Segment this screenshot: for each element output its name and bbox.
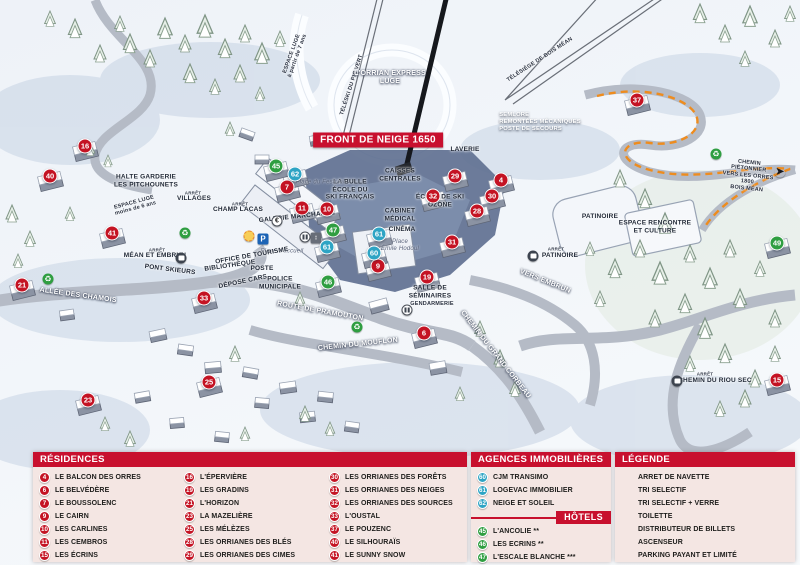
residence-row: 33 L'OUSTAL — [329, 510, 461, 523]
map-marker: 61 — [320, 240, 335, 255]
map-label: GENDARMERIE — [410, 301, 453, 307]
residences-header: RÉSIDENCES — [33, 452, 467, 467]
map-marker: 61 — [372, 227, 387, 242]
map-marker: 25 — [202, 375, 217, 390]
recycle-icon — [43, 274, 54, 285]
residence-row: 23 LA MAZELIÈRE — [184, 510, 329, 523]
residence-number-badge: 15 — [39, 550, 50, 561]
residence-name: LES GRADINS — [200, 487, 249, 494]
legend-icon — [621, 472, 632, 483]
residence-number-badge: 7 — [39, 498, 50, 509]
map-label: ARRÊT — [185, 190, 202, 195]
agence-name: CJM TRANSIMO — [493, 474, 548, 481]
residence-name: L'HORIZON — [200, 500, 239, 507]
map-label: ALLÉE DES CHAMOIS — [39, 287, 117, 306]
map-label: SALLE DE SÉMINAIRES — [409, 284, 451, 299]
legend-row: DISTRIBUTEUR DE BILLETS — [621, 523, 789, 536]
map-label: DÉPOSE CARS — [218, 273, 268, 291]
residence-number-badge: 9 — [39, 511, 50, 522]
residence-row: 32 LES ORRIANES DES SOURCES — [329, 497, 461, 510]
residence-name: LES ORRIANES DES FORÊTS — [345, 474, 446, 481]
residence-number-badge: 41 — [329, 550, 340, 561]
euro-icon — [272, 216, 283, 227]
map-marker: 29 — [448, 169, 463, 184]
residence-number-badge: 31 — [329, 485, 340, 496]
agence-row: 61 LOGEVAC IMMOBILIER — [477, 484, 605, 497]
map-label: VILLAGES — [177, 195, 211, 203]
hotels-divider — [471, 517, 556, 519]
residence-number-badge: 40 — [329, 537, 340, 548]
residence-row: 28 LES ORRIANES DES BLÉS — [184, 536, 329, 549]
map-label: CHAMP LACAS — [213, 206, 263, 214]
front-de-neige-banner: FRONT DE NEIGE 1650 — [313, 133, 443, 148]
residence-name: LE CAIRN — [55, 513, 89, 520]
residences-title: RÉSIDENCES — [40, 454, 105, 465]
map-marker: 37 — [630, 93, 645, 108]
map-label: ESPACE RENCONTRE ET CULTURE — [619, 219, 691, 234]
residence-name: LES ORRIANES DES SOURCES — [345, 500, 453, 507]
residence-row: 37 LE POUZENC — [329, 523, 461, 536]
legend-list: ARRET DE NAVETTE TRI SELECTIF TRI SELECT… — [615, 467, 795, 564]
residence-name: LE BALCON DES ORRES — [55, 474, 141, 481]
map-label: TÉLÉSIÈGE DE BOIS MÉAN — [506, 36, 574, 83]
map-label: Place Émile Hodoul — [381, 239, 419, 253]
agences-hotels-panel: AGENCES IMMOBILIÈRES 60 CJM TRANSIMO 61 … — [471, 452, 611, 562]
agence-number-badge: 61 — [477, 485, 488, 496]
hotel-number-badge: 46 — [477, 539, 488, 550]
map-marker: 10 — [320, 202, 335, 217]
map-label: ARRÊT — [548, 246, 565, 251]
residence-number-badge: 6 — [39, 485, 50, 496]
legend-icon — [621, 511, 632, 522]
map-marker: 47 — [326, 223, 341, 238]
map-label: CHEMIN PIÉTONNIER VERS LES ORRES 1800 BO… — [720, 157, 775, 195]
wc-icon — [300, 232, 311, 243]
residence-name: LE POUZENC — [345, 526, 391, 533]
residence-number-badge: 30 — [329, 472, 340, 483]
agence-number-badge: 62 — [477, 498, 488, 509]
resort-map: FRONT DE NEIGE 1650 ESPACE LUGE à partir… — [0, 0, 800, 565]
recycle-icon — [352, 322, 363, 333]
legend-label: ARRET DE NAVETTE — [638, 474, 709, 481]
residence-row: 29 LES ORRIANES DES CIMES — [184, 549, 329, 562]
residence-row: 7 LE BOUSSOLENC — [39, 497, 184, 510]
wc-icon — [402, 305, 413, 316]
map-marker: 15 — [770, 373, 785, 388]
agences-title: AGENCES IMMOBILIÈRES — [478, 454, 603, 465]
hotel-name: LES ECRINS ** — [493, 541, 544, 548]
legend-icon — [621, 524, 632, 535]
legend-icon — [621, 498, 632, 509]
residence-number-badge: 23 — [184, 511, 195, 522]
map-label: Place du Festival — [295, 179, 344, 186]
agence-name: NEIGE ET SOLEIL — [493, 500, 554, 507]
legend-title: LÉGENDE — [622, 454, 670, 465]
map-marker: 32 — [426, 189, 441, 204]
legend-icon — [621, 485, 632, 496]
hotel-name: L'ESCALE BLANCHE *** — [493, 554, 576, 561]
residence-number-badge: 10 — [39, 524, 50, 535]
residence-number-badge: 21 — [184, 498, 195, 509]
hotel-row: 45 L'ANCOLIE ** — [477, 525, 605, 538]
map-marker: 40 — [43, 169, 58, 184]
residence-name: LES ORRIANES DES NEIGES — [345, 487, 445, 494]
bus-icon — [176, 253, 187, 264]
residence-number-badge: 37 — [329, 524, 340, 535]
map-label: ESPACE LUGE moins de 6 ans — [113, 194, 157, 218]
residence-row: 16 L'ÉPERVIÈRE — [184, 471, 329, 484]
agence-number-badge: 60 — [477, 472, 488, 483]
map-marker: 60 — [367, 246, 382, 261]
map-marker: 45 — [269, 159, 284, 174]
map-label: LA BULLE ÉCOLE DU SKI FRANÇAIS — [326, 179, 375, 202]
map-marker: 46 — [321, 275, 336, 290]
residence-name: L'OUSTAL — [345, 513, 380, 520]
map-label: L'ORRIAN EXPRESS LUGE — [354, 70, 426, 87]
residence-number-badge: 32 — [329, 498, 340, 509]
glass-icon — [244, 231, 255, 242]
residence-name: LES ÉCRINS — [55, 552, 98, 559]
map-marker: 21 — [15, 278, 30, 293]
residence-row: 11 LES CEMBROS — [39, 536, 184, 549]
map-label: CHEMIN DU MOUFLON — [318, 337, 399, 354]
legend-icon — [621, 537, 632, 548]
agences-header: AGENCES IMMOBILIÈRES — [471, 452, 611, 467]
residence-name: LE BOUSSOLENC — [55, 500, 117, 507]
legend-row: TRI SELECTIF — [621, 484, 789, 497]
parking-icon — [258, 234, 269, 245]
hotel-row: 46 LES ECRINS ** — [477, 538, 605, 551]
residence-row: 30 LES ORRIANES DES FORÊTS — [329, 471, 461, 484]
map-label: CAISSES CENTRALES — [379, 167, 421, 182]
hotels-header: HÔTELS — [471, 511, 611, 524]
map-label: POLICE MUNICIPALE — [259, 275, 301, 290]
residence-name: LES ORRIANES DES BLÉS — [200, 539, 292, 546]
residence-number-badge: 25 — [184, 524, 195, 535]
map-label: HALTE GARDERIE LES PITCHOUNETS — [114, 173, 178, 188]
residence-name: LES CEMBROS — [55, 539, 107, 546]
residences-list: 4 LE BALCON DES ORRES 6 LE BELVÉDÈRE 7 L… — [33, 467, 467, 564]
legend-row: TOILETTE — [621, 510, 789, 523]
agence-row: 60 CJM TRANSIMO — [477, 471, 605, 484]
hotels-list: 45 L'ANCOLIE ** 46 LES ECRINS ** 47 L'ES… — [477, 525, 605, 565]
map-label: CHEMIN DU RIOU SEC — [678, 377, 752, 385]
agence-row: 62 NEIGE ET SOLEIL — [477, 497, 605, 510]
residence-row: 10 LES CARLINES — [39, 523, 184, 536]
residence-name: LES ORRIANES DES CIMES — [200, 552, 295, 559]
map-label: ESPACE LUGE à partir de 7 ans — [281, 31, 309, 78]
map-label: POSTE — [250, 265, 273, 273]
agence-name: LOGEVAC IMMOBILIER — [493, 487, 573, 494]
map-marker: 30 — [485, 189, 500, 204]
map-marker: 7 — [280, 180, 295, 195]
legend-panel: LÉGENDE ARRET DE NAVETTE TRI SELECTIF TR… — [615, 452, 795, 562]
legend-header: LÉGENDE — [615, 452, 795, 467]
residence-row: 25 LES MÉLÈZES — [184, 523, 329, 536]
residence-number-badge: 11 — [39, 537, 50, 548]
legend-label: DISTRIBUTEUR DE BILLETS — [638, 526, 735, 533]
recycle-icon — [711, 149, 722, 160]
map-marker: 33 — [197, 291, 212, 306]
map-label: CABINET MÉDICAL — [384, 207, 415, 222]
map-label: PATINOIRE — [542, 252, 578, 260]
map-label: LAVERIE — [450, 146, 479, 154]
hotels-title: HÔTELS — [556, 511, 611, 524]
residence-number-badge: 33 — [329, 511, 340, 522]
residence-number-badge: 4 — [39, 472, 50, 483]
residence-name: LE SUNNY SNOW — [345, 552, 405, 559]
map-label: CINÉMA — [389, 226, 416, 234]
map-marker: 6 — [417, 326, 432, 341]
residence-name: L'ÉPERVIÈRE — [200, 474, 247, 481]
hotel-row: 47 L'ESCALE BLANCHE *** — [477, 551, 605, 564]
map-label: VERS EMBRUN — [518, 268, 571, 296]
legend-label: TOILETTE — [638, 513, 673, 520]
map-label: TÉLÉSKI DU PIC VERT — [339, 54, 365, 116]
map-marker: 19 — [420, 270, 435, 285]
legend-label: TRI SELECTIF + VERRE — [638, 500, 719, 507]
legend-row: ARRET DE NAVETTE — [621, 471, 789, 484]
residence-row: 40 LE SILHOURAÏS — [329, 536, 461, 549]
map-label: ARRÊT — [697, 371, 714, 376]
map-marker: 41 — [105, 226, 120, 241]
map-marker: 62 — [288, 167, 303, 182]
map-marker: 28 — [470, 204, 485, 219]
agences-list: 60 CJM TRANSIMO 61 LOGEVAC IMMOBILIER 62… — [477, 471, 605, 510]
map-marker: 16 — [78, 139, 93, 154]
map-label: PATINOIRE — [582, 213, 618, 221]
legend-label: PARKING PAYANT ET LIMITÉ — [638, 552, 737, 559]
residence-row: 4 LE BALCON DES ORRES — [39, 471, 184, 484]
hotel-number-badge: 45 — [477, 526, 488, 537]
residence-row: 19 LES GRADINS — [184, 484, 329, 497]
residence-row: 41 LE SUNNY SNOW — [329, 549, 461, 562]
arrow-right-icon — [775, 167, 786, 178]
map-label: SEMLORE REMONTÉES MÉCANIQUES POSTE DE SE… — [499, 112, 581, 132]
map-label: ROUTE DE PRAMOUTON — [276, 300, 364, 323]
map-marker: 9 — [371, 259, 386, 274]
residence-row: 21 L'HORIZON — [184, 497, 329, 510]
bus-icon — [528, 251, 539, 262]
legend-row: ASCENSEUR — [621, 536, 789, 549]
map-marker: 4 — [494, 173, 509, 188]
residence-row: 31 LES ORRIANES DES NEIGES — [329, 484, 461, 497]
map-label: OFFICE DE TOURISME — [215, 246, 289, 266]
map-label: PONT SKIEURS — [144, 263, 196, 277]
residences-panel: RÉSIDENCES 4 LE BALCON DES ORRES 6 LE BE… — [33, 452, 467, 562]
residence-row: 6 LE BELVÉDÈRE — [39, 484, 184, 497]
map-marker: 23 — [81, 393, 96, 408]
residence-number-badge: 16 — [184, 472, 195, 483]
map-marker: 31 — [445, 235, 460, 250]
map-marker: 11 — [295, 201, 310, 216]
residence-row: 15 LES ÉCRINS — [39, 549, 184, 562]
residence-row: 9 LE CAIRN — [39, 510, 184, 523]
residence-name: LA MAZELIÈRE — [200, 513, 253, 520]
map-label: CHEMIN DU GRAND CORBEAU — [458, 309, 532, 400]
residence-name: LE BELVÉDÈRE — [55, 487, 109, 494]
map-label: ARRÊT — [149, 247, 166, 252]
residence-number-badge: 29 — [184, 550, 195, 561]
legend-label: ASCENSEUR — [638, 539, 683, 546]
legend-icon — [621, 550, 632, 561]
map-label: ARRÊT — [232, 201, 249, 206]
residence-number-badge: 28 — [184, 537, 195, 548]
residence-name: LE SILHOURAÏS — [345, 539, 400, 546]
residence-name: LES CARLINES — [55, 526, 108, 533]
recycle-icon — [180, 228, 191, 239]
legend-label: TRI SELECTIF — [638, 487, 686, 494]
map-label: Place d'accueil — [261, 248, 304, 255]
hotel-name: L'ANCOLIE ** — [493, 528, 539, 535]
legend-row: TRI SELECTIF + VERRE — [621, 497, 789, 510]
residence-number-badge: 19 — [184, 485, 195, 496]
map-label: BIBLIOTHÈQUE — [204, 259, 256, 274]
hotel-number-badge: 47 — [477, 552, 488, 563]
legend-row: PARKING PAYANT ET LIMITÉ — [621, 549, 789, 562]
bus-icon — [672, 376, 683, 387]
map-marker: 49 — [770, 236, 785, 251]
residence-name: LES MÉLÈZES — [200, 526, 250, 533]
